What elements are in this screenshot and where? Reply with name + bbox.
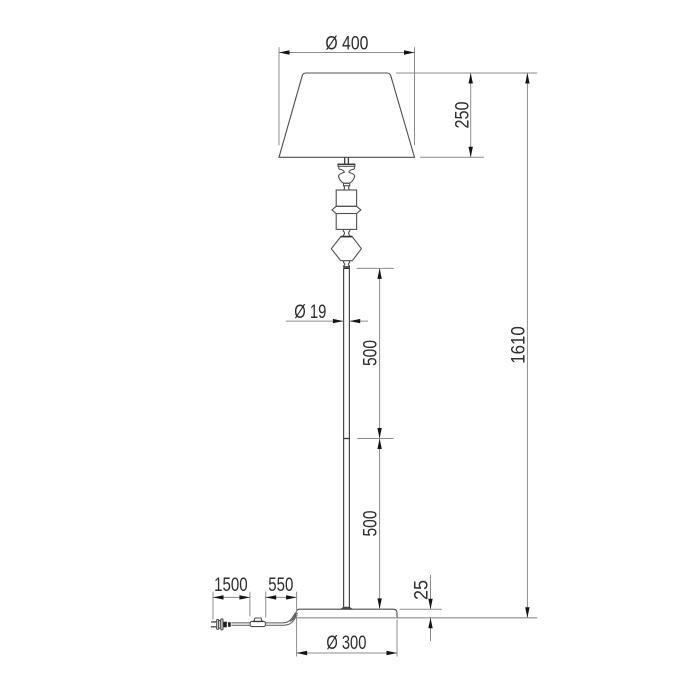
svg-text:500: 500 [360,511,381,537]
svg-text:Ø 19: Ø 19 [294,302,326,323]
svg-text:1610: 1610 [509,326,530,364]
svg-text:Ø 400: Ø 400 [325,34,368,55]
svg-text:Ø 300: Ø 300 [326,633,366,654]
svg-text:250: 250 [453,102,474,129]
svg-text:25: 25 [411,580,432,600]
svg-text:550: 550 [268,575,293,596]
svg-text:500: 500 [360,340,381,366]
svg-text:1500: 1500 [214,575,248,596]
